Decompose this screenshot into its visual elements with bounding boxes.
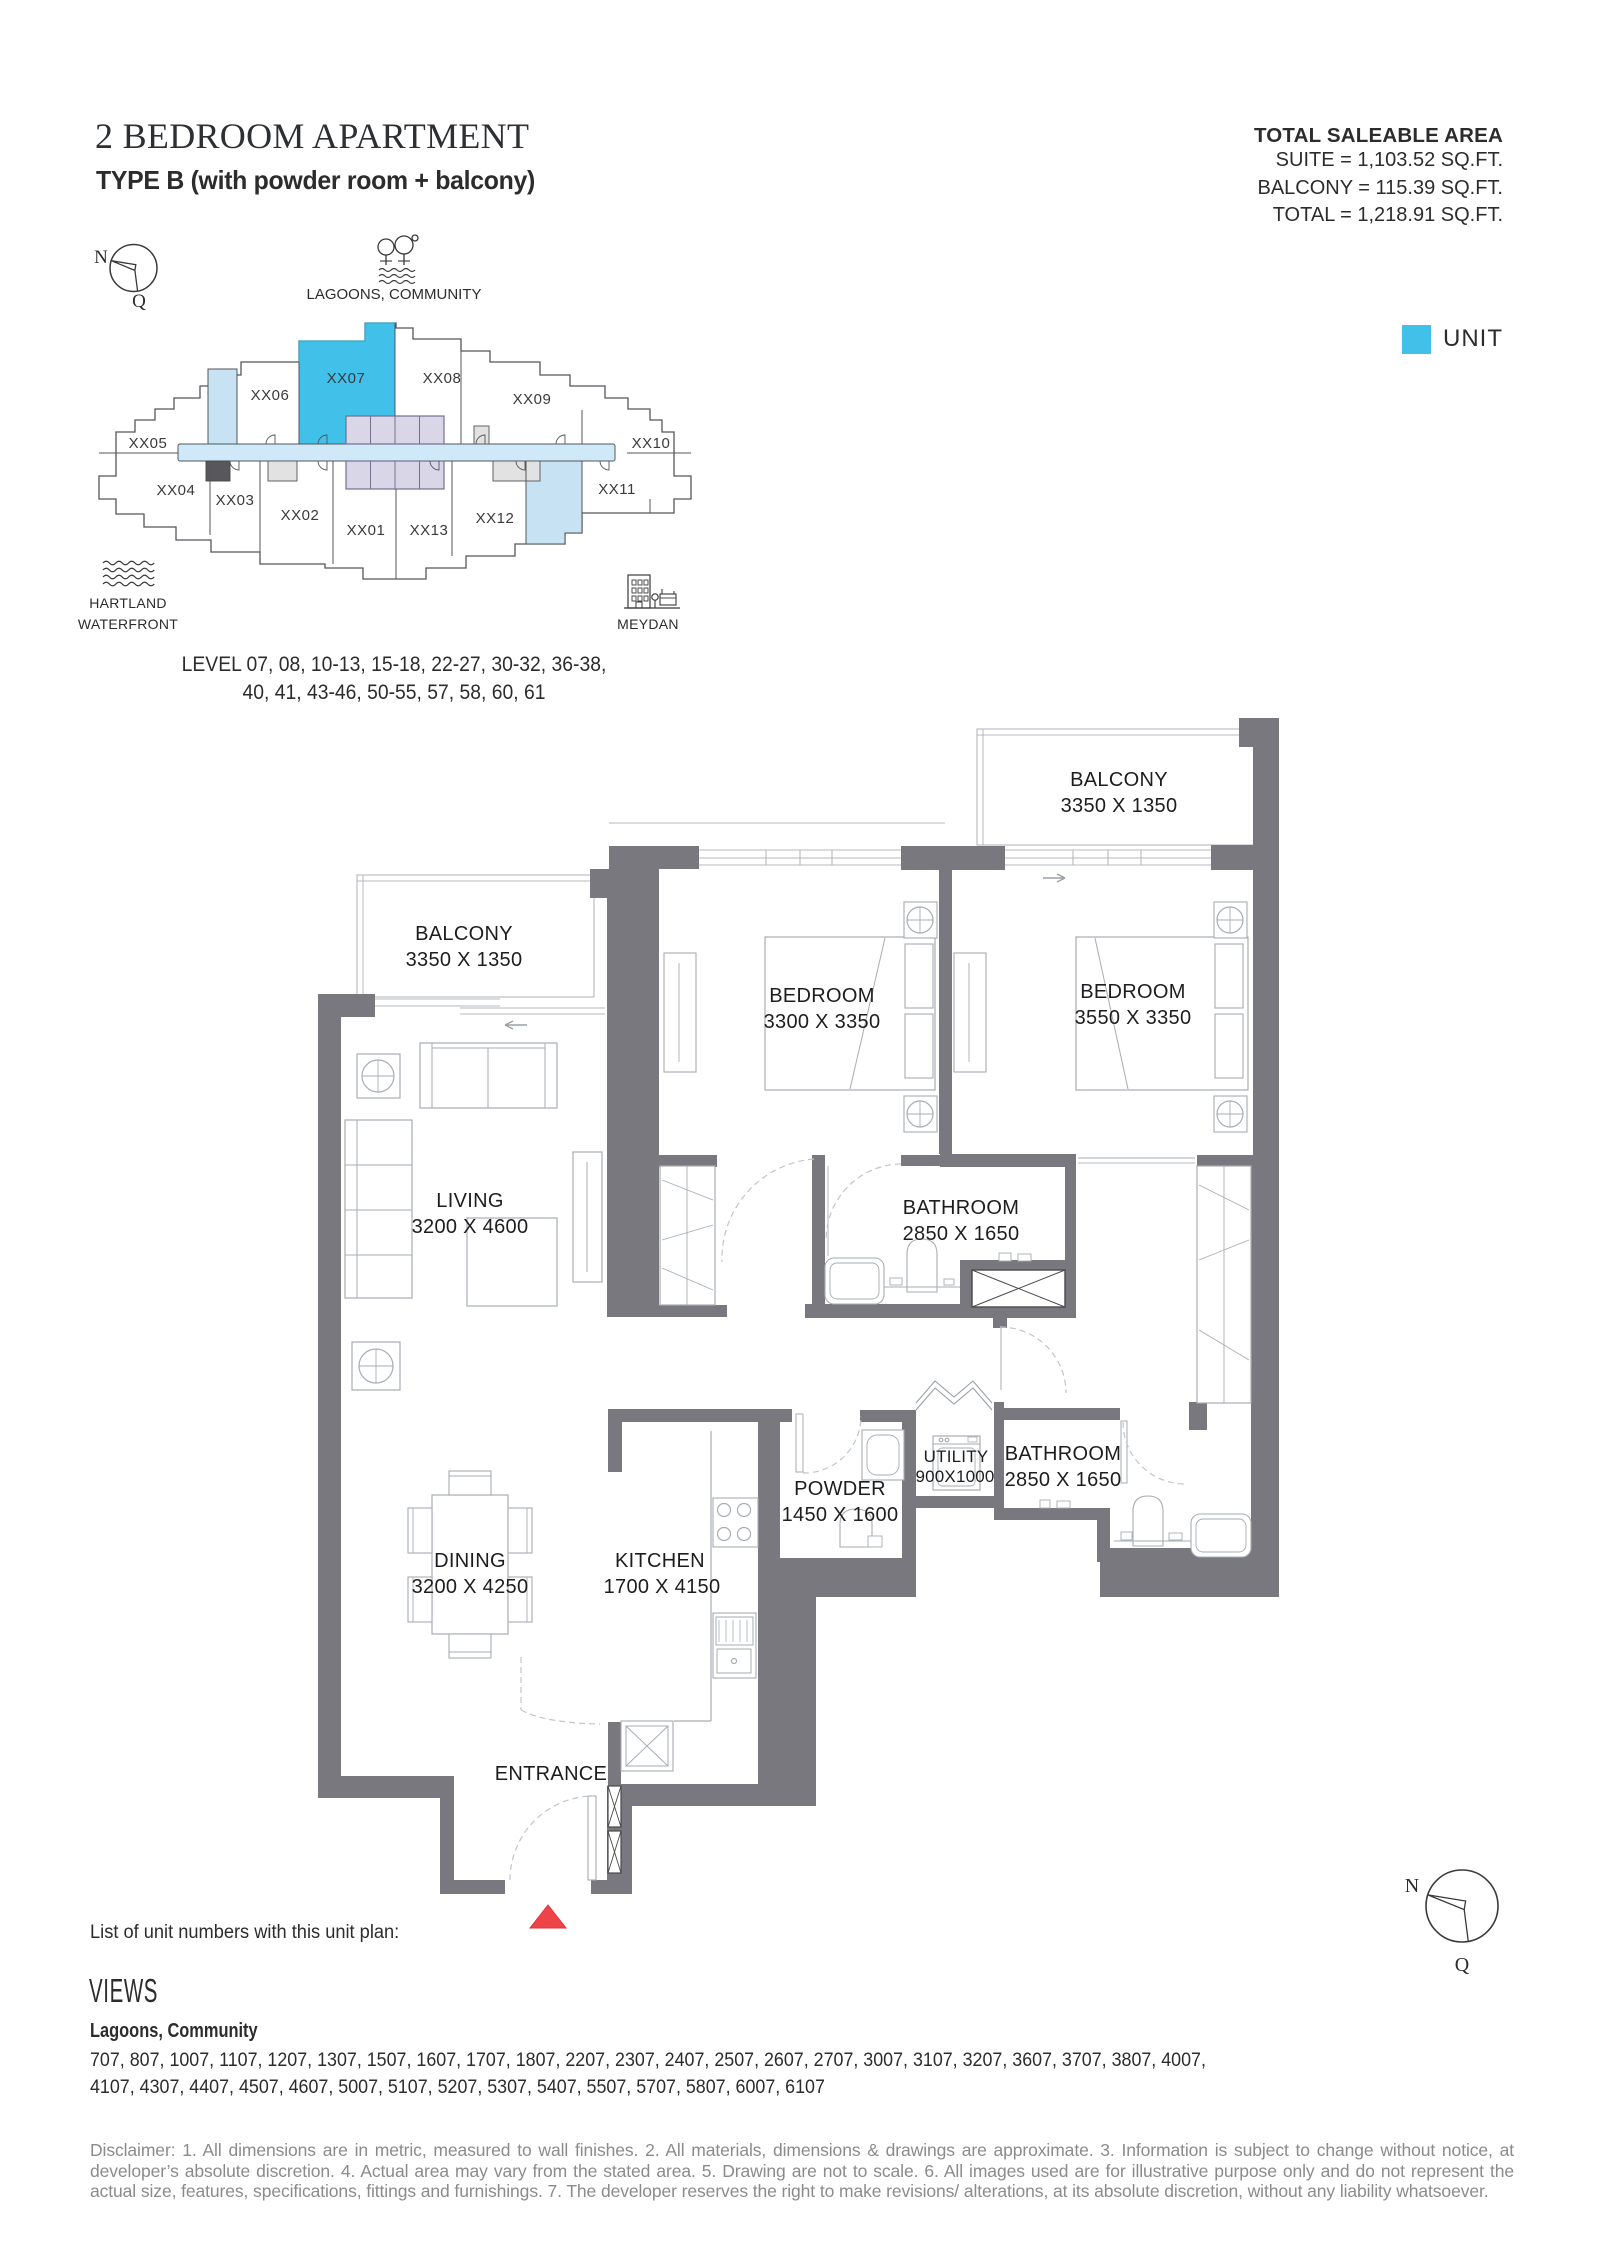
svg-text:3300 X 3350: 3300 X 3350 [764, 1011, 881, 1033]
svg-text:1450 X 1600: 1450 X 1600 [782, 1504, 899, 1526]
svg-text:BATHROOM: BATHROOM [1005, 1443, 1121, 1465]
svg-text:HARTLAND: HARTLAND [89, 595, 167, 611]
svg-text:BALCONY: BALCONY [1070, 769, 1168, 791]
svg-text:XX13: XX13 [410, 522, 449, 539]
svg-text:KITCHEN: KITCHEN [615, 1550, 705, 1572]
svg-text:XX07: XX07 [327, 370, 366, 387]
svg-text:LAGOONS, COMMUNITY: LAGOONS, COMMUNITY [306, 286, 481, 303]
svg-text:3200 X 4600: 3200 X 4600 [412, 1216, 529, 1238]
svg-text:DINING: DINING [434, 1550, 506, 1572]
svg-text:XX01: XX01 [347, 522, 386, 539]
svg-text:2850 X 1650: 2850 X 1650 [1005, 1469, 1122, 1491]
svg-text:BALCONY: BALCONY [415, 923, 513, 945]
svg-text:BEDROOM: BEDROOM [769, 985, 874, 1007]
svg-text:BATHROOM: BATHROOM [903, 1197, 1019, 1219]
svg-text:XX06: XX06 [251, 387, 290, 404]
svg-text:XX09: XX09 [513, 391, 552, 408]
svg-text:Q: Q [132, 291, 146, 312]
svg-text:N: N [94, 247, 108, 268]
svg-text:XX02: XX02 [281, 507, 320, 524]
svg-text:XX11: XX11 [598, 481, 636, 498]
svg-text:POWDER: POWDER [794, 1478, 886, 1500]
svg-text:2850 X 1650: 2850 X 1650 [903, 1223, 1020, 1245]
svg-text:3350 X 1350: 3350 X 1350 [1061, 795, 1178, 817]
svg-text:3200 X 4250: 3200 X 4250 [412, 1576, 529, 1598]
svg-text:XX12: XX12 [476, 510, 515, 527]
svg-text:1700 X 4150: 1700 X 4150 [604, 1576, 721, 1598]
svg-text:Q: Q [1455, 1954, 1470, 1976]
svg-text:XX04: XX04 [157, 482, 196, 499]
svg-text:ENTRANCE: ENTRANCE [495, 1763, 607, 1785]
svg-text:XX10: XX10 [632, 435, 671, 452]
svg-text:XX05: XX05 [129, 435, 168, 452]
svg-text:WATERFRONT: WATERFRONT [78, 616, 178, 632]
svg-text:XX08: XX08 [423, 370, 462, 387]
svg-text:3550 X 3350: 3550 X 3350 [1075, 1007, 1192, 1029]
svg-text:BEDROOM: BEDROOM [1080, 981, 1185, 1003]
svg-text:XX03: XX03 [216, 492, 255, 509]
svg-text:900X1000: 900X1000 [915, 1467, 994, 1486]
svg-text:MEYDAN: MEYDAN [617, 616, 679, 632]
svg-text:N: N [1405, 1875, 1419, 1897]
svg-text:3350 X 1350: 3350 X 1350 [406, 949, 523, 971]
svg-text:LIVING: LIVING [436, 1190, 503, 1212]
svg-text:UTILITY: UTILITY [924, 1447, 989, 1466]
